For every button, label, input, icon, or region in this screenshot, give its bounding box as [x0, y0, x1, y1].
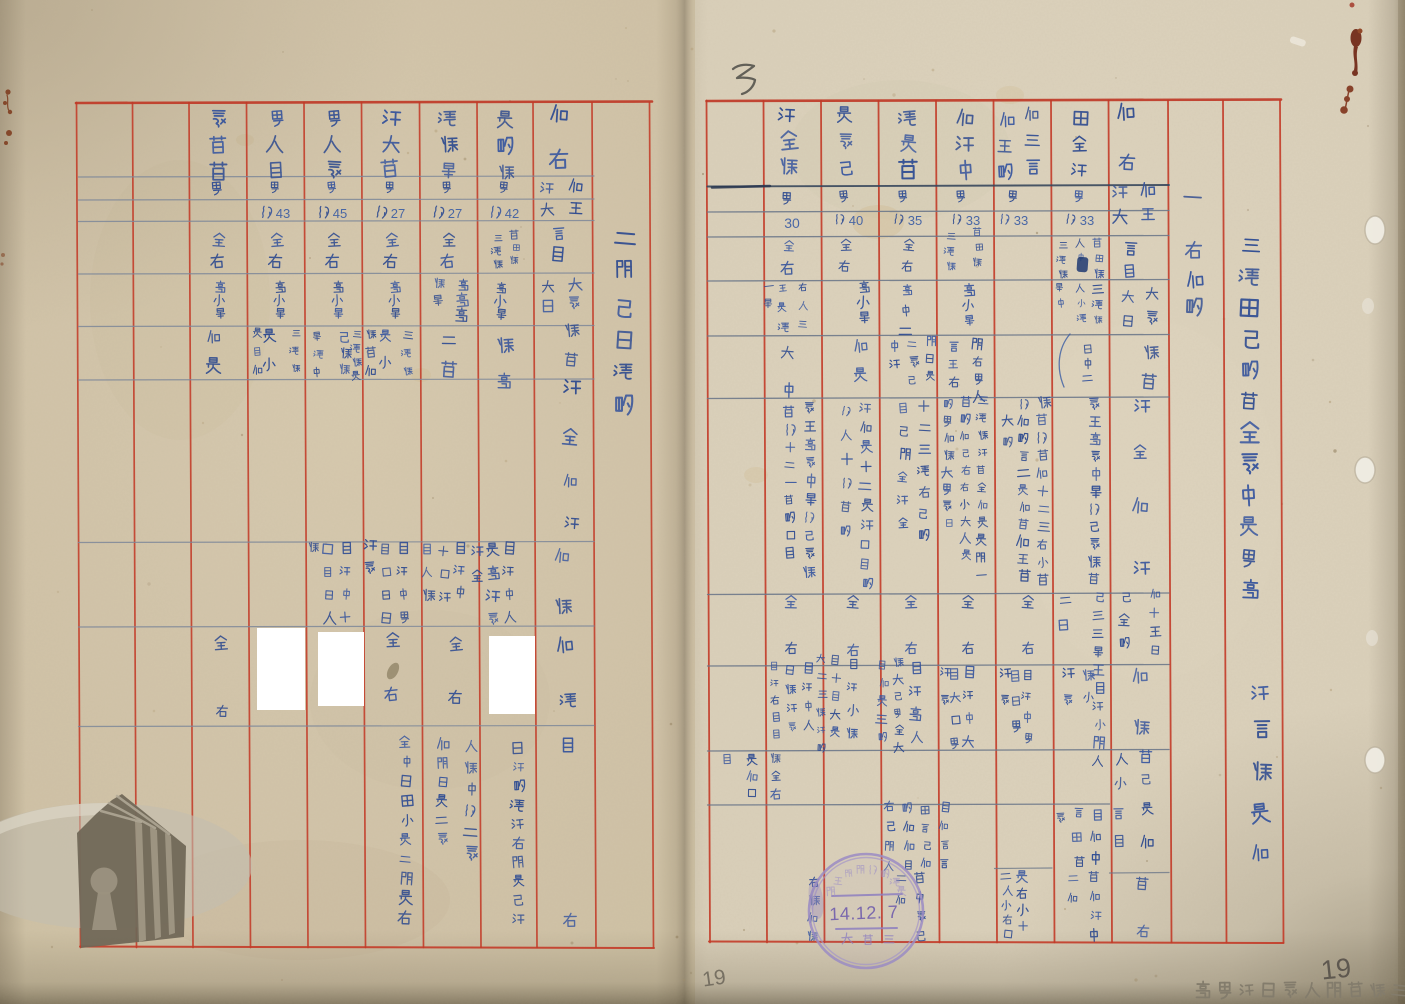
svg-text:30: 30	[784, 215, 800, 231]
svg-text:33: 33	[1080, 213, 1094, 228]
svg-text:14.12. 7: 14.12. 7	[829, 902, 899, 924]
svg-text:19: 19	[701, 966, 727, 992]
svg-text:19: 19	[1320, 953, 1353, 986]
svg-text:27: 27	[448, 206, 462, 221]
svg-text:42: 42	[505, 206, 519, 221]
svg-text:27: 27	[391, 206, 405, 221]
svg-text:35: 35	[908, 213, 922, 228]
svg-text:40: 40	[849, 213, 863, 228]
svg-text:45: 45	[333, 206, 347, 221]
svg-text:43: 43	[276, 206, 290, 221]
svg-text:33: 33	[1014, 213, 1028, 228]
svg-text:33: 33	[966, 213, 980, 228]
